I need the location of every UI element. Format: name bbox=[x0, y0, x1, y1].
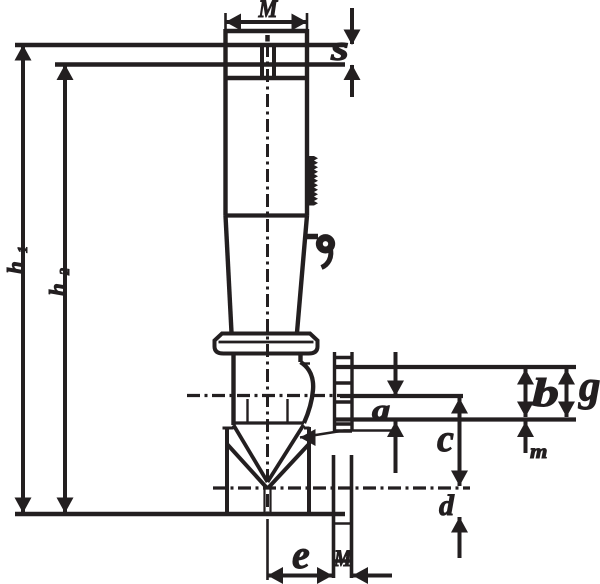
svg-text:d: d bbox=[439, 489, 455, 522]
svg-text:a: a bbox=[372, 395, 390, 426]
svg-text:1: 1 bbox=[16, 246, 31, 253]
svg-text:M: M bbox=[333, 546, 352, 572]
svg-text:2: 2 bbox=[58, 268, 73, 276]
svg-text:b: b bbox=[532, 371, 559, 415]
svg-text:c: c bbox=[437, 418, 454, 460]
svg-text:e: e bbox=[292, 532, 310, 577]
svg-text:m: m bbox=[530, 440, 547, 463]
svg-text:s: s bbox=[330, 28, 349, 68]
svg-text:h: h bbox=[3, 261, 28, 274]
svg-text:M: M bbox=[258, 0, 279, 23]
svg-text:g: g bbox=[578, 363, 600, 410]
svg-text:h: h bbox=[45, 283, 70, 296]
